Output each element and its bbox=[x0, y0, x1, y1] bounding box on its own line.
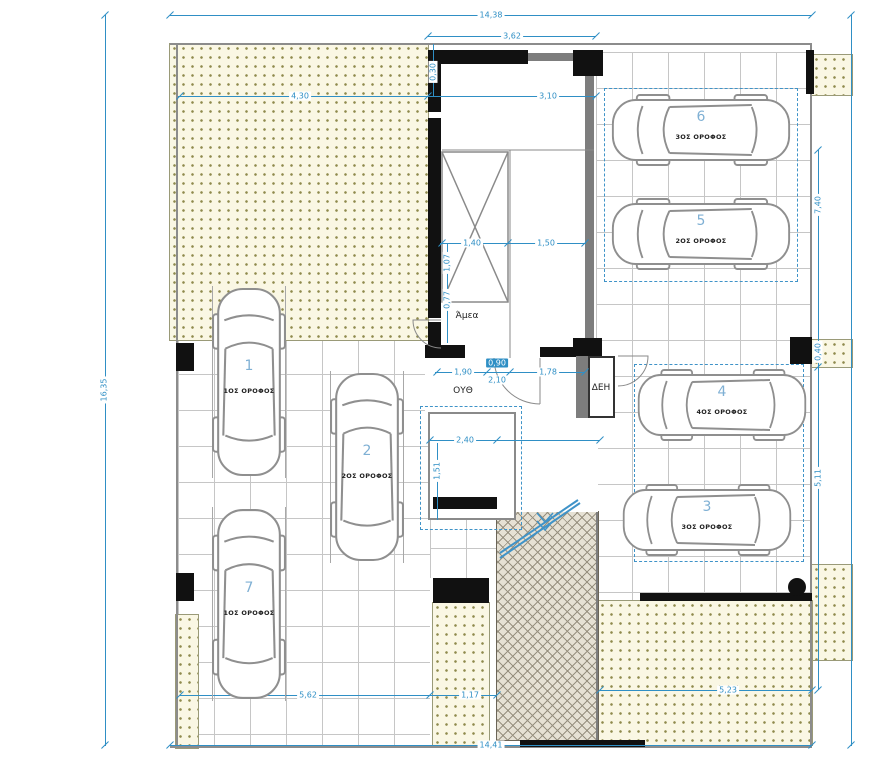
dimension-label: 2,10 bbox=[486, 376, 508, 385]
floor-plan-canvas: 11ΟΣ ΟΡΟΦΟΣ22ΟΣ ΟΡΟΦΟΣ71ΟΣ ΟΡΟΦΟΣ63ΟΣ ΟΡ… bbox=[0, 0, 892, 768]
dimension-label: 5,23 bbox=[717, 686, 739, 695]
dimension-label: 1,90 bbox=[452, 368, 474, 377]
stall-floor-label: 3ΟΣ ΟΡΟΦΟΣ bbox=[675, 134, 726, 141]
dimension-label: 1,78 bbox=[537, 368, 559, 377]
stall-number: 6 bbox=[697, 110, 706, 124]
stall-floor-label: 3ΟΣ ΟΡΟΦΟΣ bbox=[681, 524, 732, 531]
stall-number: 5 bbox=[697, 214, 706, 228]
room-label: Άμεα bbox=[456, 311, 479, 321]
stall-floor-label: 1ΟΣ ΟΡΟΦΟΣ bbox=[223, 388, 274, 395]
dimension-label: 3,62 bbox=[501, 32, 523, 41]
dimension-label: 14,41 bbox=[478, 741, 505, 750]
dimension-label: 1,07 bbox=[443, 252, 452, 274]
dimension-label: 0,77 bbox=[443, 289, 452, 311]
dimension-label: 1,17 bbox=[459, 691, 481, 700]
dimension-label: 14,38 bbox=[478, 11, 505, 20]
dimension-label: 1,50 bbox=[535, 239, 557, 248]
labels-layer: 14,383,624,303,100,301,401,501,070,771,9… bbox=[0, 0, 892, 768]
dimension-label: 0,30 bbox=[429, 61, 438, 83]
stall-floor-label: 4ΟΣ ΟΡΟΦΟΣ bbox=[696, 409, 747, 416]
dimension-label: 16,35 bbox=[100, 377, 109, 404]
stall-number: 1 bbox=[245, 359, 254, 373]
stall-number: 7 bbox=[245, 581, 254, 595]
stall-number: 2 bbox=[363, 444, 372, 458]
stall-floor-label: 2ΟΣ ΟΡΟΦΟΣ bbox=[341, 473, 392, 480]
stall-number: 4 bbox=[718, 385, 727, 399]
dimension-label: 2,40 bbox=[454, 436, 476, 445]
dimension-label: 0,40 bbox=[814, 341, 823, 363]
room-label: ΔΕΗ bbox=[592, 383, 611, 393]
dimension-label: 4,30 bbox=[289, 92, 311, 101]
dimension-label: 3,10 bbox=[537, 92, 559, 101]
dimension-label: 5,11 bbox=[814, 467, 823, 489]
stall-floor-label: 2ΟΣ ΟΡΟΦΟΣ bbox=[675, 238, 726, 245]
dimension-label: 1,51 bbox=[433, 460, 442, 482]
stall-floor-label: 1ΟΣ ΟΡΟΦΟΣ bbox=[223, 610, 274, 617]
dimension-label: 1,40 bbox=[461, 239, 483, 248]
dimension-label: 0,90 bbox=[486, 359, 508, 368]
dimension-label: 7,40 bbox=[814, 194, 823, 216]
room-label: ΟΥΘ bbox=[453, 386, 473, 396]
stall-number: 3 bbox=[703, 500, 712, 514]
dimension-label: 5,62 bbox=[297, 691, 319, 700]
